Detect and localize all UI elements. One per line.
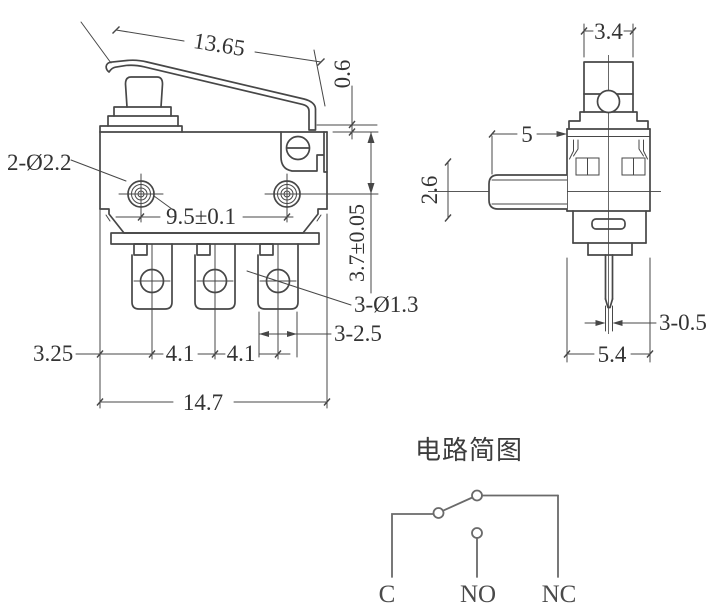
dim-edge-to-terminal: 3.25 — [33, 341, 73, 366]
label-mounting-holes: 2-Ø2.2 — [7, 150, 72, 175]
dim-lever-tip-gap: 0.6 — [330, 60, 355, 89]
terminal-label-nc: NC — [542, 581, 577, 608]
contact-pivot — [434, 508, 444, 518]
circuit-diagram: 电路简图 C NO NC — [379, 436, 577, 608]
circuit-lines — [392, 491, 558, 578]
technical-drawing-canvas: 13.65 0.6 2-Ø2.2 9.5±0.1 3.7±0.05 — [0, 0, 720, 615]
terminal-3 — [258, 244, 298, 359]
micro-switch-datasheet-drawing: 13.65 0.6 2-Ø2.2 9.5±0.1 3.7±0.05 — [0, 0, 720, 615]
dim-body-width: 14.7 — [183, 390, 223, 415]
contact-nc — [472, 491, 482, 501]
plunger — [108, 77, 178, 126]
side-lever — [489, 175, 567, 209]
dim-pitch-right: 4.1 — [227, 341, 256, 366]
side-view: 3.4 5 2.6 3-0.5 — [417, 19, 707, 367]
dim-hole-spacing: 9.5±0.1 — [166, 204, 236, 229]
side-lower-housing — [573, 211, 646, 255]
dim-lever-height: 2.6 — [417, 176, 442, 205]
label-terminal-holes: 3-Ø1.3 — [354, 292, 419, 317]
dim-top-to-hole: 3.7±0.05 — [344, 204, 369, 282]
dim-pitch-left: 4.1 — [166, 341, 195, 366]
side-terminal-pin — [606, 255, 613, 308]
dim-terminal-width: 3-2.5 — [334, 321, 382, 346]
dim-lever-protrusion: 5 — [521, 122, 533, 147]
circuit-title: 电路简图 — [415, 436, 523, 465]
terminal-label-no: NO — [460, 581, 496, 608]
front-view: 13.65 0.6 2-Ø2.2 9.5±0.1 3.7±0.05 — [7, 22, 419, 415]
dim-lever-length: 13.65 — [192, 28, 247, 61]
screw-head — [287, 137, 310, 160]
dim-body-depth: 5.4 — [598, 342, 627, 367]
lever-arm — [106, 60, 315, 130]
terminal-label-c: C — [379, 581, 396, 608]
dim-button-width: 3.4 — [594, 19, 623, 44]
contact-no — [472, 528, 482, 538]
dim-terminal-thickness: 3-0.5 — [659, 310, 707, 335]
